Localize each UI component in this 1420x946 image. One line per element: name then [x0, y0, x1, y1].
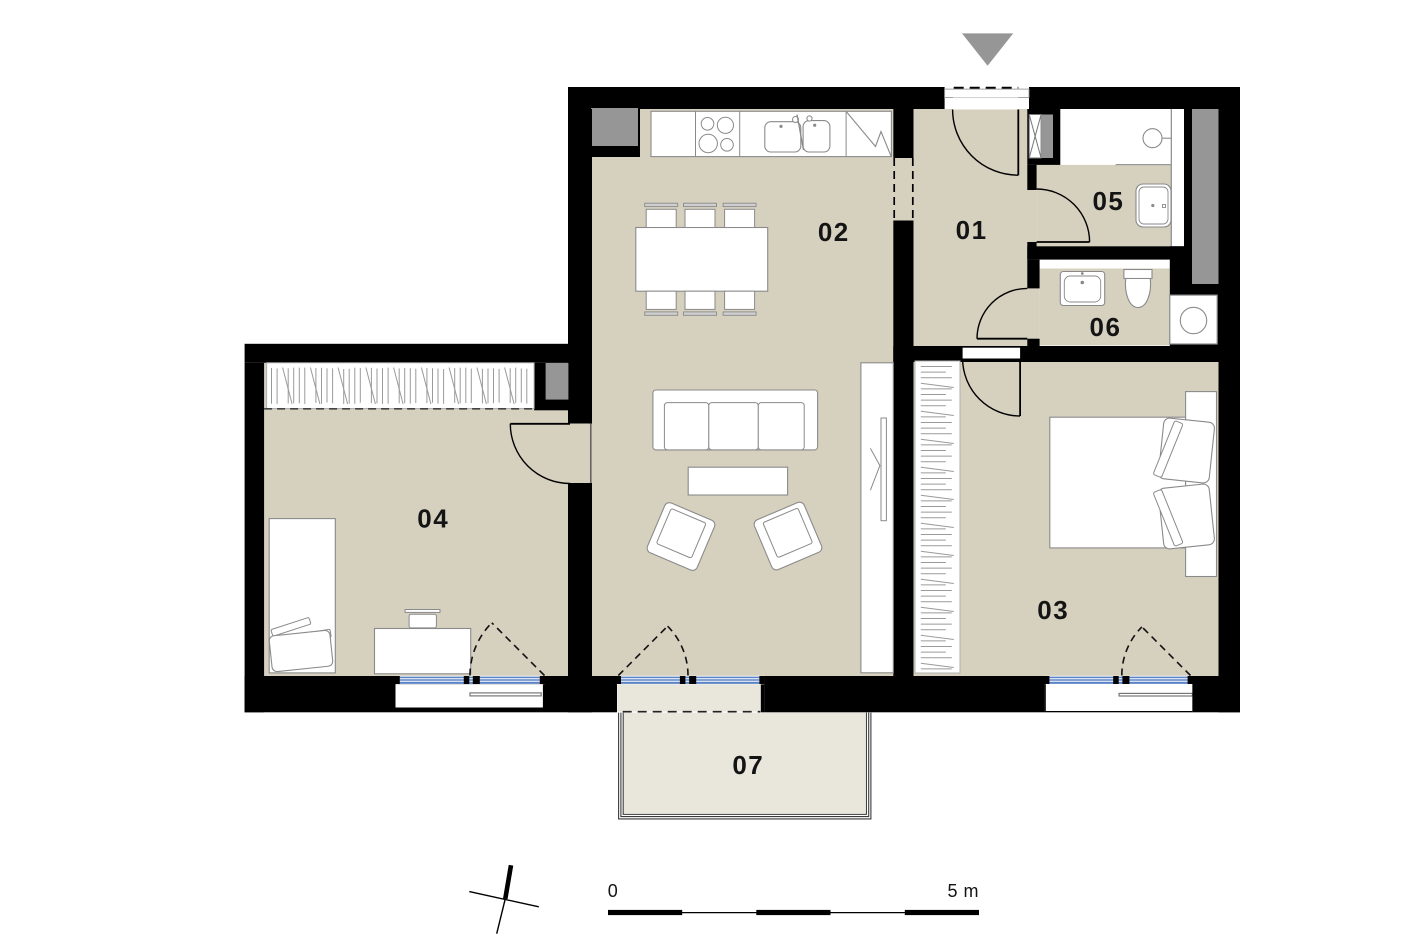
svg-text:06: 06 [1090, 312, 1122, 342]
svg-text:0: 0 [608, 881, 619, 901]
svg-text:03: 03 [1037, 595, 1069, 625]
svg-text:05: 05 [1092, 186, 1124, 216]
svg-text:04: 04 [417, 504, 449, 534]
svg-text:5 m: 5 m [947, 881, 979, 901]
svg-text:07: 07 [732, 750, 764, 780]
svg-text:01: 01 [956, 215, 988, 245]
svg-text:02: 02 [818, 217, 850, 247]
